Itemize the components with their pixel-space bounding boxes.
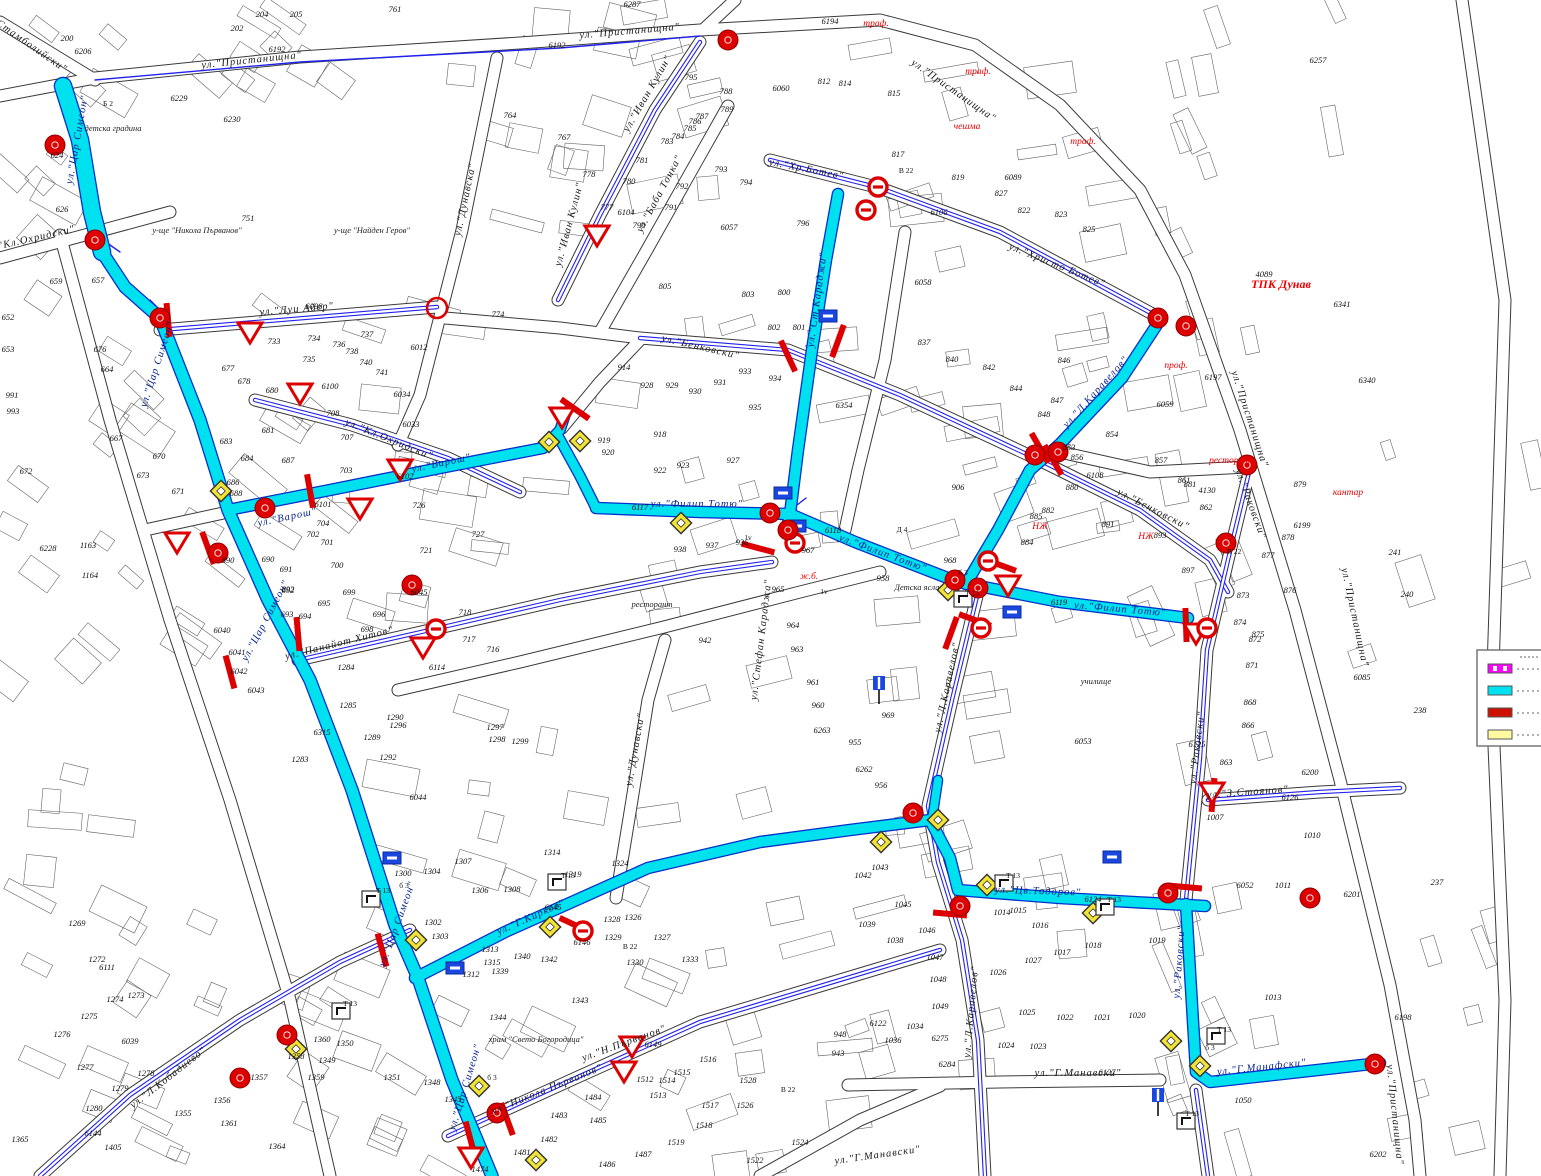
parcel-number: 1481: [514, 1147, 531, 1157]
building-outline: [187, 909, 218, 935]
parcel-number: 1526: [737, 1100, 755, 1110]
parcel-number: 6229: [171, 93, 189, 103]
parcel-number: 1019: [1149, 935, 1167, 945]
parcel-number: 6341: [1334, 299, 1351, 309]
map-note-label: Т 13: [1107, 895, 1121, 904]
legend-swatch-yellow-line: [1488, 730, 1512, 739]
parcel-number: 882: [1042, 505, 1056, 515]
parcel-number: 1517: [702, 1100, 720, 1110]
parcel-number: 787: [696, 111, 710, 121]
parcel-number: 1034: [907, 1021, 925, 1031]
parcel-number: 963: [791, 644, 804, 654]
parcel-number: 698: [361, 624, 375, 634]
parcel-number: 893: [1154, 530, 1167, 540]
parcel-number: 6119: [1051, 597, 1068, 607]
place-name-label: у-ще "Найден Геров": [333, 225, 410, 235]
parcel-number: 1345: [445, 1094, 462, 1104]
building-outline: [1197, 152, 1218, 180]
parcel-number: 6098: [306, 301, 324, 311]
legend-swatch-red-line: [1488, 708, 1512, 717]
no-entry-bar: [790, 541, 800, 544]
parcel-number: 1025: [1019, 1007, 1036, 1017]
parcel-number: 1021: [1094, 1012, 1111, 1022]
building-outline: [1055, 327, 1108, 351]
parcel-number: 659: [50, 276, 64, 286]
parcel-number: 856: [1071, 452, 1085, 462]
parcel-number: 1276: [54, 1029, 72, 1039]
building-outline: [817, 1038, 873, 1056]
valve-node-marker[interactable]: [1148, 308, 1168, 328]
building-outline: [1471, 925, 1497, 968]
building-outline: [522, 477, 569, 494]
building-outline: [78, 623, 120, 662]
place-name-label: детска градина: [85, 123, 142, 133]
parcel-number: 673: [137, 470, 150, 480]
parcel-number: 205: [290, 9, 303, 19]
no-entry-sign-icon[interactable]: [979, 552, 997, 570]
parcel-number: 702: [307, 529, 321, 539]
parcel-number: 6114: [429, 662, 446, 672]
marker-layer: [45, 30, 1385, 1171]
parcel-number: 1339: [492, 966, 510, 976]
building-outline: [1224, 1128, 1252, 1176]
parcel-number: 878: [1282, 532, 1296, 542]
map-note-label: б 3: [399, 881, 409, 890]
parcel-number: 873: [1237, 590, 1250, 600]
building-outline: [890, 667, 919, 701]
parcel-number: 657: [92, 275, 106, 285]
parcel-number: 822: [1018, 205, 1032, 215]
parcel-number: 1405: [105, 1142, 122, 1152]
parcel-number: 1018: [1085, 940, 1103, 950]
building-outline: [41, 788, 61, 813]
parcel-number: 969: [882, 710, 896, 720]
parcel-number: 1036: [885, 1035, 903, 1045]
parcel-number: 1024: [998, 1040, 1016, 1050]
building-outline: [935, 246, 965, 272]
valve-node-body: [950, 896, 970, 916]
flag-stripe: [878, 677, 880, 689]
building-outline: [1039, 854, 1068, 889]
building-outline: [194, 996, 222, 1016]
parcel-number: 6202: [1370, 1149, 1388, 1159]
map-note-label: В 22: [781, 1085, 796, 1094]
parcel-number: 965: [772, 584, 785, 594]
building-outline: [907, 519, 960, 549]
parcel-number: 6100: [322, 381, 340, 391]
valve-node-marker[interactable]: [230, 1068, 250, 1088]
building-outline: [1463, 1004, 1482, 1025]
parcel-number: 6340: [1359, 375, 1377, 385]
parcel-number: 993: [7, 406, 20, 416]
building-outline: [0, 511, 28, 540]
building-outline: [420, 1155, 466, 1176]
parcel-number: 6144: [85, 1128, 103, 1138]
parcel-number: 761: [389, 4, 402, 14]
valve-node-marker[interactable]: [85, 230, 105, 250]
parcel-number: 1512: [637, 1074, 655, 1084]
no-entry-sign-icon[interactable]: [972, 619, 990, 637]
parcel-number: 956: [875, 780, 889, 790]
building-outline: [624, 963, 677, 1007]
place-name-label: ресторант: [631, 599, 673, 609]
parcel-number: 6052: [1237, 880, 1255, 890]
parcel-number: 1357: [251, 1072, 269, 1082]
parcel-number: 814: [839, 78, 853, 88]
parcel-number: 6127: [1099, 1067, 1117, 1077]
parcel-number: 1026: [990, 967, 1008, 977]
no-entry-sign-icon[interactable]: [857, 201, 875, 219]
parcel-number: 696: [373, 609, 387, 619]
parcel-number: 6206: [75, 46, 93, 56]
building-outline: [87, 815, 136, 838]
map-note-label: б 3: [958, 568, 968, 577]
parcel-number: 876: [1284, 585, 1298, 595]
valve-node-marker[interactable]: [1025, 445, 1045, 465]
parcel-number: 6118: [825, 525, 842, 535]
parcel-number: 964: [787, 620, 801, 630]
parcel-number: 707: [341, 432, 355, 442]
parcel-number: 866: [1242, 720, 1256, 730]
parcel-number: 726: [413, 500, 427, 510]
parcel-number: 6354: [836, 400, 854, 410]
info-sign-icon[interactable]: [1103, 851, 1121, 863]
parcel-number: 955: [849, 737, 862, 747]
flag-marker-icon[interactable]: [873, 676, 885, 704]
red-annotation-label: кантар: [1333, 488, 1363, 498]
building-outline: [969, 731, 1004, 764]
parcel-number: 815: [888, 88, 901, 98]
building-outline: [237, 68, 276, 103]
parcel-number: 1015: [1010, 905, 1027, 915]
building-outline: [99, 24, 127, 50]
info-sign-icon[interactable]: [774, 487, 792, 499]
parcel-number: 1516: [700, 1054, 718, 1064]
map-note-label: Д 4: [897, 525, 908, 534]
parcel-number: 1010: [1304, 830, 1322, 840]
give-way-triangle-icon[interactable]: [288, 384, 312, 404]
parcel-number: 880: [1066, 482, 1080, 492]
building-outline: [89, 885, 147, 933]
parcel-number: 699: [343, 587, 357, 597]
building-outline: [468, 780, 491, 796]
parcel-number: 805: [659, 281, 672, 291]
map-note-label: б 3: [1205, 1043, 1215, 1052]
parcel-number: 958: [877, 573, 891, 583]
road-surface[interactable]: [398, 58, 497, 445]
building-outline: [118, 565, 143, 589]
building-outline: [1173, 370, 1206, 411]
valve-node-marker[interactable]: [778, 520, 798, 540]
parcel-number: 6108: [1087, 470, 1105, 480]
parcel-number: 796: [797, 218, 811, 228]
parcel-number: 863: [1220, 757, 1233, 767]
hydrant-diamond-icon[interactable]: [1160, 1030, 1181, 1051]
parcel-number: 1280: [86, 1103, 104, 1113]
parcel-number: 686: [227, 477, 241, 487]
place-name-label: у-ще "Никола Първанов": [151, 225, 242, 235]
red-annotation-label: НЖ: [1137, 532, 1155, 542]
parcel-number: 202: [231, 23, 245, 33]
parcel-number: 1358: [288, 1051, 306, 1061]
closure-bar-marker[interactable]: [829, 324, 846, 358]
parcel-number: 920: [602, 447, 616, 457]
valve-node-marker[interactable]: [1365, 1054, 1385, 1074]
parcel-number: 1050: [1235, 1095, 1253, 1105]
parcel-number: 1515: [674, 1067, 691, 1077]
parcel-number: 6085: [1354, 672, 1371, 682]
flag-marker-icon[interactable]: [1152, 1088, 1164, 1116]
valve-node-marker[interactable]: [1176, 316, 1196, 336]
parcel-number: 774: [492, 309, 506, 319]
parcel-number: 241: [1389, 547, 1402, 557]
parcel-number: 942: [699, 635, 713, 645]
valve-node-marker[interactable]: [1300, 888, 1320, 908]
parcel-number: 1524: [792, 1137, 810, 1147]
no-entry-sign-icon[interactable]: [869, 178, 887, 196]
parcel-number: 1482: [541, 1134, 559, 1144]
parcel-number: 1361: [221, 1118, 238, 1128]
parcel-number: 1046: [919, 925, 937, 935]
red-annotation-label: ресторант: [1208, 456, 1255, 466]
parcel-number: 6117: [632, 502, 649, 512]
parcel-number: 781: [636, 155, 649, 165]
give-way-triangle-icon[interactable]: [612, 1062, 636, 1082]
give-way-triangle-icon[interactable]: [411, 638, 435, 658]
parcel-number: 823: [1055, 209, 1068, 219]
parcel-number: 1486: [599, 1159, 617, 1169]
parcel-number: 6039: [122, 1036, 140, 1046]
building-outline: [1204, 5, 1231, 48]
street-name-label: ул."Г.Манавски": [833, 1144, 921, 1167]
building-outline: [203, 982, 226, 1008]
parcel-number: 927: [727, 455, 741, 465]
parcel-number: 794: [740, 177, 754, 187]
parcel-number: 6230: [224, 114, 242, 124]
parcel-number: 6200: [1302, 767, 1320, 777]
road-surface[interactable]: [40, 930, 410, 1176]
parcel-number: 721: [420, 545, 433, 555]
parcel-number: 842: [983, 362, 997, 372]
parcel-number: 1016: [1032, 920, 1050, 930]
parcel-number: 1039: [859, 919, 877, 929]
parcel-number: 6041: [229, 647, 246, 657]
building-outline: [1521, 440, 1541, 490]
network-segment[interactable]: [1186, 904, 1380, 1082]
red-annotation-label: НЖ: [1031, 522, 1049, 532]
red-annotation-label: ТПК Дунав: [1251, 277, 1311, 291]
parcel-number: 6059: [1157, 399, 1175, 409]
building-outline: [1170, 120, 1191, 154]
parcel-number: 727: [472, 529, 486, 539]
parcel-number: 4130: [1199, 485, 1217, 495]
building-outline: [317, 62, 356, 99]
parcel-number: 736: [333, 339, 347, 349]
parcel-number: 1017: [1054, 947, 1072, 957]
parcel-number: 778: [583, 169, 597, 179]
parcel-number: 693: [281, 609, 294, 619]
parcel-number: 1487: [635, 1149, 653, 1159]
building-outline: [490, 209, 545, 233]
parcel-number: 872: [1249, 634, 1263, 644]
valve-node-marker[interactable]: [1158, 883, 1178, 903]
info-sign-dash: [1007, 611, 1017, 614]
hydrant-diamond-icon[interactable]: [870, 831, 891, 852]
parcel-number: 1273: [128, 990, 145, 1000]
parcel-number: 961: [807, 677, 820, 687]
parcel-number: 837: [918, 337, 932, 347]
parcel-number: 1349: [319, 1055, 337, 1065]
parcel-number: 890: [222, 555, 236, 565]
parcel-number: 677: [222, 363, 236, 373]
info-sign-icon[interactable]: [446, 962, 464, 974]
parcel-number: 1328: [604, 914, 622, 924]
map-note-label: В 22: [899, 166, 914, 175]
parcel-number: 879: [1294, 479, 1308, 489]
parcel-number: 1022: [1057, 1012, 1075, 1022]
valve-node-body: [1300, 888, 1320, 908]
parcel-number: 653: [2, 344, 15, 354]
parcel-number: 204: [256, 9, 270, 19]
parcel-number: 1163: [80, 540, 96, 550]
parcel-number: 1365: [12, 1134, 29, 1144]
valve-node-marker[interactable]: [277, 1025, 297, 1045]
parcel-number: 6257: [1310, 55, 1328, 65]
parcel-number: 626: [56, 204, 70, 214]
parcel-number: 1049: [932, 1001, 950, 1011]
parcel-number: 664: [101, 364, 115, 374]
valve-node-marker[interactable]: [903, 803, 923, 823]
parcel-number: 827: [995, 188, 1009, 198]
map-note-label: Т 13: [1006, 871, 1020, 880]
parcel-number: 1038: [887, 935, 905, 945]
parcel-number: 929: [666, 380, 680, 390]
no-entry-bar: [873, 185, 883, 188]
valve-node-marker[interactable]: [950, 896, 970, 916]
parcel-number: 1283: [292, 754, 309, 764]
road-surface[interactable]: [562, 340, 640, 428]
red-annotation-label: чешма: [954, 122, 981, 132]
no-entry-bar: [976, 626, 986, 629]
hydrant-diamond-icon[interactable]: [569, 430, 590, 451]
parcel-number: 6199: [1294, 520, 1312, 530]
road-surface[interactable]: [848, 1080, 1160, 1085]
parcel-number: 1485: [590, 1115, 607, 1125]
info-sign-icon[interactable]: [819, 310, 837, 322]
parcel-number: 688: [230, 488, 244, 498]
give-way-triangle-icon[interactable]: [165, 533, 189, 553]
parcel-number: 680: [266, 385, 280, 395]
building-outline: [60, 763, 88, 786]
give-way-triangle-icon[interactable]: [348, 499, 372, 519]
place-name-label: храм "Свето Богородица": [488, 1034, 584, 1044]
parcel-number: 708: [327, 408, 341, 418]
parcel-number: 791: [665, 202, 678, 212]
parcel-number: 840: [946, 354, 960, 364]
parcel-number: 1300: [395, 868, 413, 878]
parcel-number: 868: [1244, 697, 1258, 707]
building-outline: [1166, 1055, 1185, 1086]
map-note-label: Т 13: [343, 999, 357, 1008]
parcel-number: 800: [778, 287, 792, 297]
no-entry-bar: [578, 929, 588, 932]
parcel-number: 885: [1030, 511, 1043, 521]
parcel-number: 1011: [1275, 880, 1291, 890]
parcel-number: 6060: [773, 83, 791, 93]
parcel-number: 1042: [855, 870, 873, 880]
parcel-number: 6101: [315, 499, 332, 509]
parcel-number: 881: [1184, 479, 1197, 489]
parcel-number: 740: [360, 357, 374, 367]
parcel-number: 795: [685, 72, 698, 82]
building-outline: [24, 854, 57, 887]
no-entry-sign-icon[interactable]: [1198, 619, 1216, 637]
give-way-triangle-icon[interactable]: [238, 323, 262, 343]
parcel-number: 6043: [248, 685, 265, 695]
parcel-number: 877: [1262, 550, 1276, 560]
red-annotation-label: траф.: [965, 66, 990, 77]
info-sign-icon[interactable]: [383, 852, 401, 864]
parcel-number: 6122: [870, 1018, 888, 1028]
parcel-number: 6194: [822, 16, 840, 26]
parcel-number: 871: [1246, 660, 1259, 670]
parcel-number: 6034: [394, 389, 412, 399]
building-outline: [563, 791, 608, 826]
no-entry-sign-icon[interactable]: [427, 620, 445, 638]
parcel-number: 764: [504, 110, 518, 120]
parcel-number: 704: [317, 518, 331, 528]
parcel-number: 741: [376, 367, 389, 377]
valve-node-marker[interactable]: [760, 503, 780, 523]
building-outline: [1201, 996, 1224, 1023]
building-outline: [333, 1031, 381, 1072]
parcel-number: 6145: [545, 902, 562, 912]
cadastral-map-stage: ул."Ал.Стамболийски"ул."Пристанищна"ул."…: [0, 0, 1541, 1176]
parcel-number: 6315: [314, 727, 331, 737]
parcel-number: 683: [220, 436, 233, 446]
water-main: [40, 930, 410, 1176]
building-outline: [0, 656, 28, 702]
parcel-number: 1329: [605, 932, 623, 942]
valve-node-body: [85, 230, 105, 250]
info-sign-icon[interactable]: [1003, 606, 1021, 618]
parcel-number: 802: [768, 322, 782, 332]
parcel-number: 6201: [1344, 889, 1361, 899]
building-outline: [520, 1006, 575, 1052]
parcel-number: 930: [689, 386, 703, 396]
building-outline: [697, 175, 720, 200]
building-outline: [1166, 60, 1186, 98]
parcel-number: 1356: [214, 1095, 232, 1105]
parcel-number: 6089: [1005, 172, 1023, 182]
parcel-number: 1304: [424, 866, 442, 876]
building-outline: [18, 1045, 65, 1079]
parcel-number: 672: [20, 466, 34, 476]
parcel-number: 1528: [740, 1075, 758, 1085]
parcel-number: 1020: [1129, 1010, 1147, 1020]
valve-node-marker[interactable]: [718, 30, 738, 50]
parcel-number: 6053: [1075, 736, 1092, 746]
building-outline: [1420, 935, 1442, 967]
parcel-number: 777: [601, 202, 615, 212]
valve-node-body: [277, 1025, 297, 1045]
parcel-number: 716: [487, 644, 501, 654]
parcel-number: 1007: [1207, 812, 1225, 822]
parcel-number: 6044: [410, 792, 428, 802]
map-canvas[interactable]: ул."Ал.Стамболийски"ул."Пристанищна"ул."…: [0, 0, 1541, 1176]
no-entry-bar: [431, 627, 441, 630]
parcel-number: 6045: [411, 587, 428, 597]
